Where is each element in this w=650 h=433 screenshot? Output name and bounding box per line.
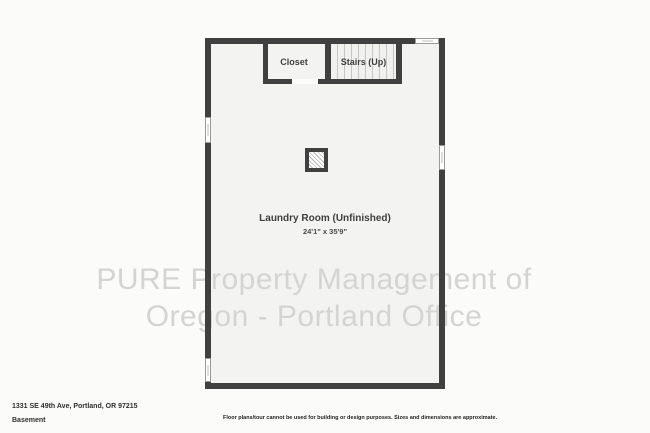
property-address: 1331 SE 49th Ave, Portland, OR 97215: [12, 403, 138, 410]
closet-door-opening: [292, 79, 318, 84]
floor-plan-outline: Closet Stairs (Up) Laundry Room (Unfinis…: [205, 38, 445, 389]
window-top: [415, 38, 439, 44]
window-glass: [207, 365, 209, 376]
laundry-room-label: Laundry Room (Unfinished): [211, 213, 439, 224]
closet-bottom-wall: [263, 79, 292, 84]
stairs-bottom-wall: [331, 79, 402, 84]
closet-label: Closet: [263, 57, 325, 67]
window-glass: [441, 152, 443, 164]
window-glass: [207, 124, 209, 136]
window-left-upper: [205, 117, 211, 143]
support-column-icon: [305, 148, 328, 172]
stairs-right-wall: [396, 44, 402, 84]
disclaimer-text: Floor plans/tour cannot be used for buil…: [223, 415, 433, 421]
window-right: [439, 145, 445, 170]
floor-plan-page: PURE Property Management of Oregon - Por…: [0, 0, 650, 433]
stairs-label: Stairs (Up): [331, 57, 396, 67]
floor-name: Basement: [12, 417, 45, 424]
window-glass: [422, 40, 433, 42]
window-left-lower: [205, 358, 211, 382]
laundry-room-dimensions: 24'1" x 35'9": [211, 227, 439, 236]
